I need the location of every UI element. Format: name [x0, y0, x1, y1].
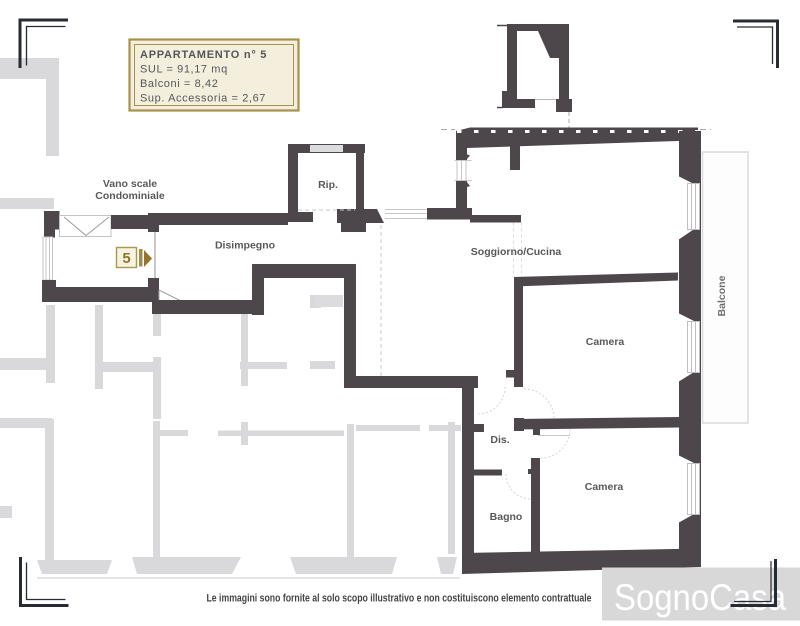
svg-text:5: 5 — [122, 250, 130, 267]
svg-text:Bagno: Bagno — [490, 511, 523, 523]
svg-text:Sup. Accessoria = 2,67: Sup. Accessoria = 2,67 — [140, 93, 266, 105]
svg-text:Dis.: Dis. — [490, 434, 509, 446]
svg-text:SognoCasa: SognoCasa — [614, 577, 786, 618]
svg-text:Vano scale: Vano scale — [103, 178, 157, 190]
svg-text:Soggiorno/Cucina: Soggiorno/Cucina — [471, 246, 562, 258]
svg-text:Disimpegno: Disimpegno — [215, 240, 275, 252]
svg-text:Le immagini sono fornite al so: Le immagini sono fornite al solo scopo i… — [207, 593, 592, 605]
svg-text:Rip.: Rip. — [318, 179, 338, 191]
svg-text:APPARTAMENTO n° 5: APPARTAMENTO n° 5 — [140, 49, 267, 61]
svg-text:Balcone: Balcone — [716, 275, 728, 316]
svg-text:Camera: Camera — [585, 481, 624, 493]
svg-text:Condominiale: Condominiale — [95, 190, 165, 202]
svg-text:SUL = 91,17 mq: SUL = 91,17 mq — [140, 64, 228, 76]
svg-text:Balconi = 8,42: Balconi = 8,42 — [140, 78, 218, 90]
svg-text:Camera: Camera — [586, 336, 625, 348]
